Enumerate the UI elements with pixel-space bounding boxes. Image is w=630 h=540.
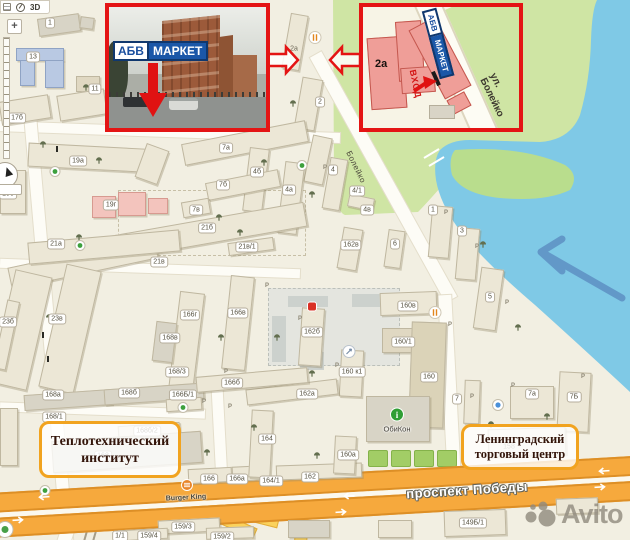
figure-icon	[46, 349, 51, 367]
building-number-label: 13	[26, 52, 40, 63]
building-number-label: 7б	[216, 180, 230, 191]
arrow-left-icon	[330, 47, 360, 73]
building-number-label: 4/1	[349, 186, 365, 197]
sign-market: МАРКЕТ	[149, 41, 208, 61]
lane-arrow-icon	[11, 511, 27, 530]
building-number-label: 4	[328, 165, 338, 176]
lane-arrow-icon	[334, 503, 350, 522]
photo-car-light	[169, 98, 199, 110]
building-number-label: 19г	[103, 200, 119, 211]
lane-arrow-icon	[593, 478, 609, 497]
parking-mark: P	[228, 404, 232, 410]
zoom-in-button[interactable]: +	[7, 19, 22, 34]
tree-icon	[543, 407, 551, 425]
building-number-label: 166г	[180, 310, 200, 321]
callout-line: институт	[81, 450, 139, 467]
tree-icon	[308, 364, 316, 382]
plan-inset: АБВ МАРКЕТ 2а ВХОД ул. Болейко	[359, 3, 523, 132]
abv-market-sign: АБВ МАРКЕТ	[113, 41, 208, 61]
parking-mark: P	[202, 399, 206, 405]
avito-logo-icon	[524, 500, 558, 530]
parking-mark: P	[323, 165, 327, 171]
building-number-label: 160в	[397, 301, 418, 312]
red-shop-icon	[307, 299, 318, 317]
green-icon	[50, 164, 61, 182]
blue-icon	[492, 398, 504, 416]
building-number-label: 162б	[301, 327, 323, 338]
parking-mark: P	[444, 210, 448, 216]
tree-icon	[215, 208, 223, 226]
tree-icon	[203, 443, 211, 461]
map-viewport[interactable]: PPPPPPPPPPPPPPi 1131117б19а19б19г21а2а27…	[0, 0, 630, 540]
building-number-label: 166Б/1	[169, 390, 197, 401]
parking-mark: P	[298, 316, 302, 322]
building-number-label: 168в	[159, 333, 180, 344]
building-number-label: 6	[390, 239, 400, 250]
building	[463, 380, 481, 425]
tree-icon	[479, 235, 487, 253]
arrow-right-icon	[268, 47, 298, 73]
building-number-label: 17б	[8, 113, 26, 124]
building-number-label: 2	[315, 97, 325, 108]
sign-abv: АБВ	[113, 41, 149, 61]
parking-mark: P	[470, 394, 474, 400]
connector-arrows	[260, 42, 368, 78]
building-number-label: 21в	[150, 257, 168, 268]
building-number-label: 21в/1	[235, 242, 258, 253]
tree-icon	[514, 318, 522, 336]
building-number-label: 162в	[340, 240, 361, 251]
building-number-label: 166б	[221, 378, 243, 389]
building-number-label: 7в	[189, 205, 203, 216]
plan-label-2a: 2а	[375, 58, 387, 70]
building	[288, 520, 330, 538]
building-number-label: 21б	[198, 223, 216, 234]
compass-icon[interactable]	[16, 3, 25, 12]
callout-institute: Теплотехнический институт	[39, 421, 181, 478]
callout-line: торговый центр	[475, 447, 566, 462]
entrance-arrow-icon	[413, 75, 439, 95]
building-number-label: 162	[301, 472, 319, 483]
building-number-label: 1	[428, 205, 438, 216]
building-number-label: 166	[200, 474, 218, 485]
building-number-label: 3	[457, 226, 467, 237]
building-number-label: 11	[88, 84, 101, 95]
building-number-label: 160а	[337, 450, 359, 461]
tree-icon	[95, 151, 103, 169]
tree-icon	[217, 328, 225, 346]
green-icon	[297, 158, 308, 176]
parking-mark: P	[265, 283, 269, 289]
building-number-label: 166а	[226, 474, 248, 485]
building	[79, 16, 95, 30]
tree-icon	[236, 223, 244, 241]
building-number-label: 1/1	[112, 531, 128, 540]
building	[20, 60, 35, 86]
restaurant-icon	[429, 306, 442, 324]
building-number-label: 160/1	[391, 337, 415, 348]
tree-icon	[273, 328, 281, 346]
parking-mark: P	[475, 244, 479, 250]
figure-icon	[41, 325, 46, 343]
building-number-label: 149Б/1	[459, 518, 487, 529]
building-number-label: 159/3	[171, 522, 195, 533]
figure-icon	[55, 139, 60, 157]
lane-arrow-icon	[35, 488, 51, 507]
building-number-label: 7а	[219, 143, 233, 154]
map-scale-box[interactable]	[0, 184, 22, 195]
callout-line: Ленинградский	[476, 432, 565, 447]
building-number-label: 1	[45, 18, 55, 29]
building-number-label: 164	[258, 434, 276, 445]
building-number-label: 21а	[47, 239, 65, 250]
map-toolbar: 3D	[0, 0, 50, 14]
building-number-label: 4б	[250, 167, 264, 178]
building-number-label: 168б	[118, 388, 140, 399]
building	[45, 60, 64, 88]
parking-mark: P	[224, 369, 228, 375]
building-number-label: 168а	[42, 390, 64, 401]
building-number-label: 7Б	[567, 392, 582, 403]
3d-button[interactable]: 3D	[30, 3, 40, 12]
building-number-label: 160	[420, 372, 438, 383]
layers-icon[interactable]	[3, 3, 11, 11]
building-number-label: 4а	[282, 185, 296, 196]
building	[148, 198, 168, 214]
poi-label-obikon: ОбиКон	[383, 425, 410, 434]
building	[0, 408, 18, 466]
green-icon	[75, 238, 86, 256]
plan-building-gray	[429, 105, 455, 119]
callout-trade-center: Ленинградский торговый центр	[461, 424, 579, 470]
building-number-label: 4в	[360, 205, 374, 216]
parking-mark: P	[505, 300, 509, 306]
parking-mark: P	[511, 383, 515, 389]
building-number-label: 7	[452, 394, 462, 405]
building-number-label: 23б	[0, 317, 17, 328]
photo-inset: АБВ МАРКЕТ	[105, 3, 270, 132]
red-down-arrow-icon	[137, 63, 169, 119]
parking-mark: P	[448, 322, 452, 328]
building-number-label: 19а	[69, 156, 87, 167]
building	[118, 192, 146, 216]
building-number-label: 168/3	[165, 367, 189, 378]
building-number-label: 164/1	[259, 476, 283, 487]
callout-line: Теплотехнический	[51, 433, 169, 450]
zoom-slider[interactable]	[3, 37, 10, 159]
nav-icon	[343, 345, 356, 363]
tree-icon	[308, 185, 316, 203]
building-number-label: 5	[485, 292, 495, 303]
building-number-label: 162а	[296, 389, 318, 400]
tree-icon	[313, 446, 321, 464]
avito-watermark: Avito	[524, 499, 623, 530]
building	[378, 520, 412, 538]
tree-icon	[39, 135, 47, 153]
green-icon	[178, 400, 189, 418]
parking-mark: P	[581, 374, 585, 380]
building-number-label: 160 к1	[339, 367, 366, 378]
building-number-label: 159/4	[137, 531, 161, 540]
building-number-label: 7а	[525, 389, 539, 400]
tree-icon	[250, 418, 258, 436]
avito-text: Avito	[561, 499, 623, 530]
building-number-label: 166в	[227, 308, 248, 319]
tree-icon	[289, 94, 297, 112]
building-number-label: 23в	[48, 314, 66, 325]
building-number-label: 159/2	[210, 532, 234, 540]
